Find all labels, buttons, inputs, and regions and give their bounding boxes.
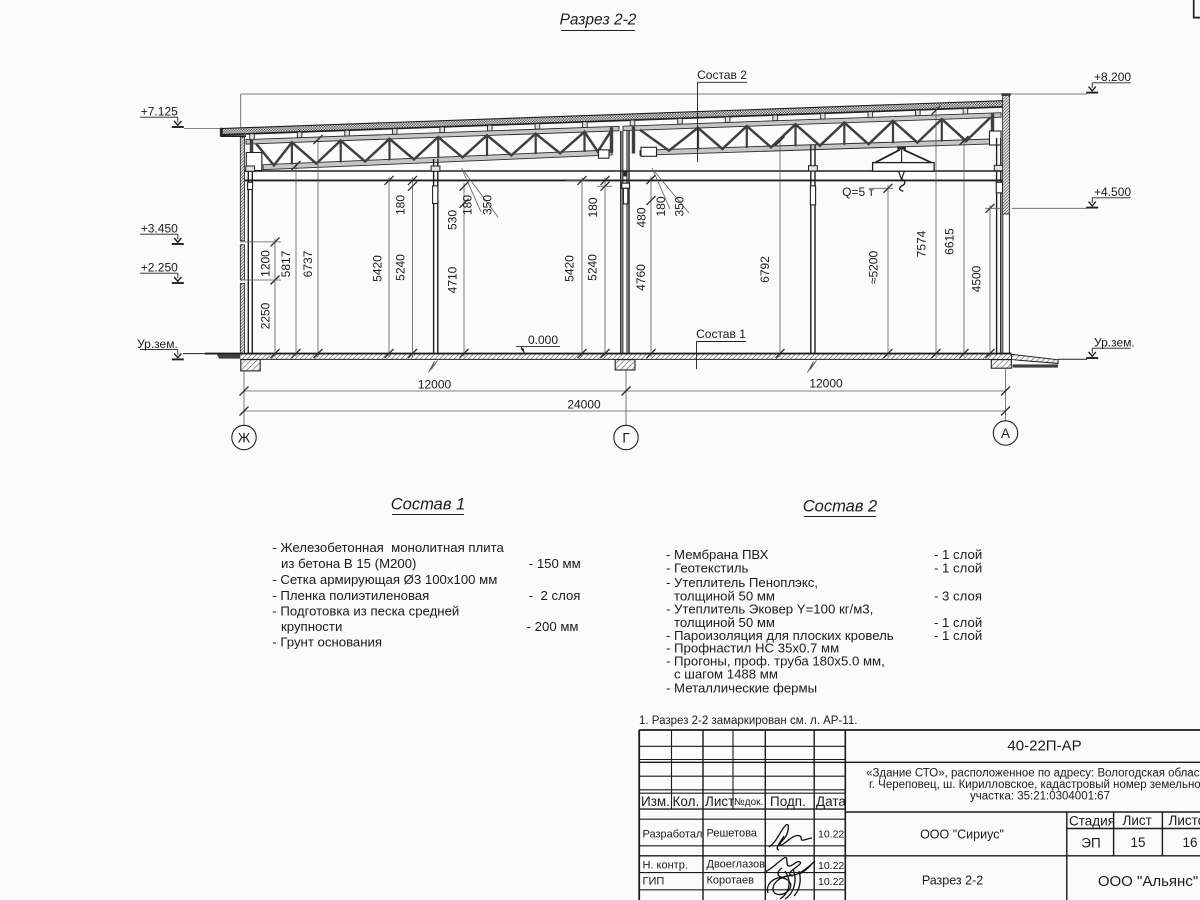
svg-text:350: 350 — [481, 195, 495, 215]
svg-text:- Подготовка из песка средней: - Подготовка из песка средней — [272, 604, 459, 619]
svg-text:- Металлические фермы: - Металлические фермы — [666, 681, 817, 696]
svg-text:Ж: Ж — [238, 430, 251, 445]
svg-text:- 150 мм: - 150 мм — [529, 556, 581, 571]
svg-text:Ур.зем.: Ур.зем. — [1094, 335, 1135, 349]
svg-text:Состав 2: Состав 2 — [697, 68, 747, 82]
svg-text:Разрез 2-2: Разрез 2-2 — [922, 874, 983, 888]
svg-text:ГИП: ГИП — [643, 876, 665, 888]
svg-text:2250: 2250 — [259, 302, 273, 329]
svg-text:Коротаев: Коротаев — [707, 875, 755, 887]
svg-text:Ур.зем.: Ур.зем. — [137, 337, 178, 351]
svg-text:6615: 6615 — [943, 228, 957, 255]
svg-text:Н. контр.: Н. контр. — [643, 860, 688, 872]
svg-text:Состав 1: Состав 1 — [696, 327, 746, 341]
svg-text:ЭП: ЭП — [1081, 836, 1100, 851]
svg-text:40-22П-АР: 40-22П-АР — [1007, 738, 1081, 755]
svg-text:15: 15 — [1130, 835, 1145, 850]
svg-text:Лист: Лист — [705, 794, 734, 809]
svg-text:4760: 4760 — [634, 264, 648, 291]
svg-text:180: 180 — [586, 197, 600, 217]
svg-text:6792: 6792 — [758, 256, 772, 283]
svg-text:1. Разрез 2-2 замаркирован см.: 1. Разрез 2-2 замаркирован см. л. АР-11. — [639, 715, 857, 727]
svg-text:- Геотекстиль: - Геотекстиль — [666, 560, 749, 575]
svg-text:г. Череповец, ш. Кирилловское,: г. Череповец, ш. Кирилловское, кадастров… — [869, 779, 1200, 791]
svg-text:530: 530 — [446, 210, 460, 230]
svg-text:+2.250: +2.250 — [141, 260, 178, 274]
svg-text:«Здание СТО», расположенное по: «Здание СТО», расположенное по адресу: В… — [866, 768, 1200, 780]
svg-text:180: 180 — [394, 195, 408, 215]
svg-text:- 2 слоя: - 2 слоя — [529, 588, 581, 603]
svg-text:№док.: №док. — [734, 797, 763, 808]
svg-text:- Железобетонная монолитная п: - Железобетонная монолитная плита — [272, 540, 504, 555]
svg-text:Кол.: Кол. — [673, 794, 700, 809]
svg-text:крупности: крупности — [281, 619, 342, 634]
svg-text:4710: 4710 — [446, 266, 460, 293]
svg-text:- 1 слой: - 1 слой — [934, 560, 982, 575]
svg-text:Дата: Дата — [816, 794, 846, 809]
svg-text:≈5200: ≈5200 — [867, 251, 881, 285]
svg-text:Состав 1: Состав 1 — [391, 496, 465, 514]
svg-text:Стадия: Стадия — [1069, 814, 1115, 829]
svg-text:10.22: 10.22 — [818, 876, 844, 888]
svg-text:- 1 слой: - 1 слой — [934, 628, 982, 643]
svg-text:Подп.: Подп. — [770, 794, 806, 809]
svg-text:180: 180 — [461, 195, 475, 215]
svg-text:12000: 12000 — [809, 376, 843, 390]
svg-text:Разрез 2-2: Разрез 2-2 — [560, 12, 637, 29]
svg-text:- Сетка армирующая Ø3 100х100: - Сетка армирующая Ø3 100х100 мм — [272, 572, 497, 587]
svg-text:6737: 6737 — [301, 250, 315, 277]
svg-text:4500: 4500 — [970, 265, 984, 292]
svg-text:Изм.: Изм. — [641, 794, 670, 809]
svg-text:24000: 24000 — [567, 397, 601, 411]
svg-text:12000: 12000 — [418, 378, 452, 392]
svg-text:- Пленка полиэтиленовая: - Пленка полиэтиленовая — [272, 588, 429, 603]
svg-text:из бетона В 15 (М200): из бетона В 15 (М200) — [281, 556, 416, 571]
svg-text:- 200 мм: - 200 мм — [527, 619, 579, 634]
svg-text:+3.450: +3.450 — [141, 221, 178, 235]
svg-text:Двоеглазов: Двоеглазов — [707, 859, 766, 871]
svg-text:+7.125: +7.125 — [141, 104, 178, 118]
svg-text:5420: 5420 — [563, 255, 577, 282]
svg-text:350: 350 — [673, 196, 687, 216]
svg-text:180: 180 — [654, 196, 668, 216]
svg-text:+8.200: +8.200 — [1094, 70, 1131, 84]
svg-text:Разработал: Разработал — [643, 829, 703, 841]
svg-text:10.22: 10.22 — [818, 829, 844, 841]
svg-text:- 3 слоя: - 3 слоя — [934, 588, 982, 603]
svg-text:А: А — [1001, 426, 1010, 441]
svg-text:10.22: 10.22 — [818, 860, 844, 872]
svg-text:ООО "Сириус": ООО "Сириус" — [920, 828, 1004, 842]
svg-text:ООО "Альянс": ООО "Альянс" — [1098, 873, 1198, 890]
svg-text:5240: 5240 — [394, 254, 408, 281]
svg-text:16: 16 — [1182, 835, 1197, 850]
svg-text:Г: Г — [622, 430, 630, 445]
svg-text:480: 480 — [635, 207, 649, 227]
svg-text:7574: 7574 — [915, 230, 929, 257]
svg-text:Q=5 т: Q=5 т — [842, 185, 874, 199]
svg-text:1200: 1200 — [259, 250, 273, 277]
svg-text:- Грунт основания: - Грунт основания — [272, 635, 382, 650]
svg-text:5420: 5420 — [371, 255, 385, 282]
svg-text:с шагом 1488 мм: с шагом 1488 мм — [674, 667, 778, 682]
svg-text:+4.500: +4.500 — [1094, 185, 1131, 199]
svg-text:5817: 5817 — [279, 250, 293, 277]
svg-text:0.000: 0.000 — [528, 333, 558, 347]
svg-text:Решетова: Решетова — [707, 828, 758, 840]
svg-text:Лист: Лист — [1123, 813, 1152, 828]
svg-text:Состав 2: Состав 2 — [803, 498, 877, 516]
svg-text:5240: 5240 — [586, 254, 600, 281]
svg-text:участка: 35:21:0304001:67: участка: 35:21:0304001:67 — [970, 791, 1110, 803]
svg-text:Листов: Листов — [1169, 813, 1200, 828]
